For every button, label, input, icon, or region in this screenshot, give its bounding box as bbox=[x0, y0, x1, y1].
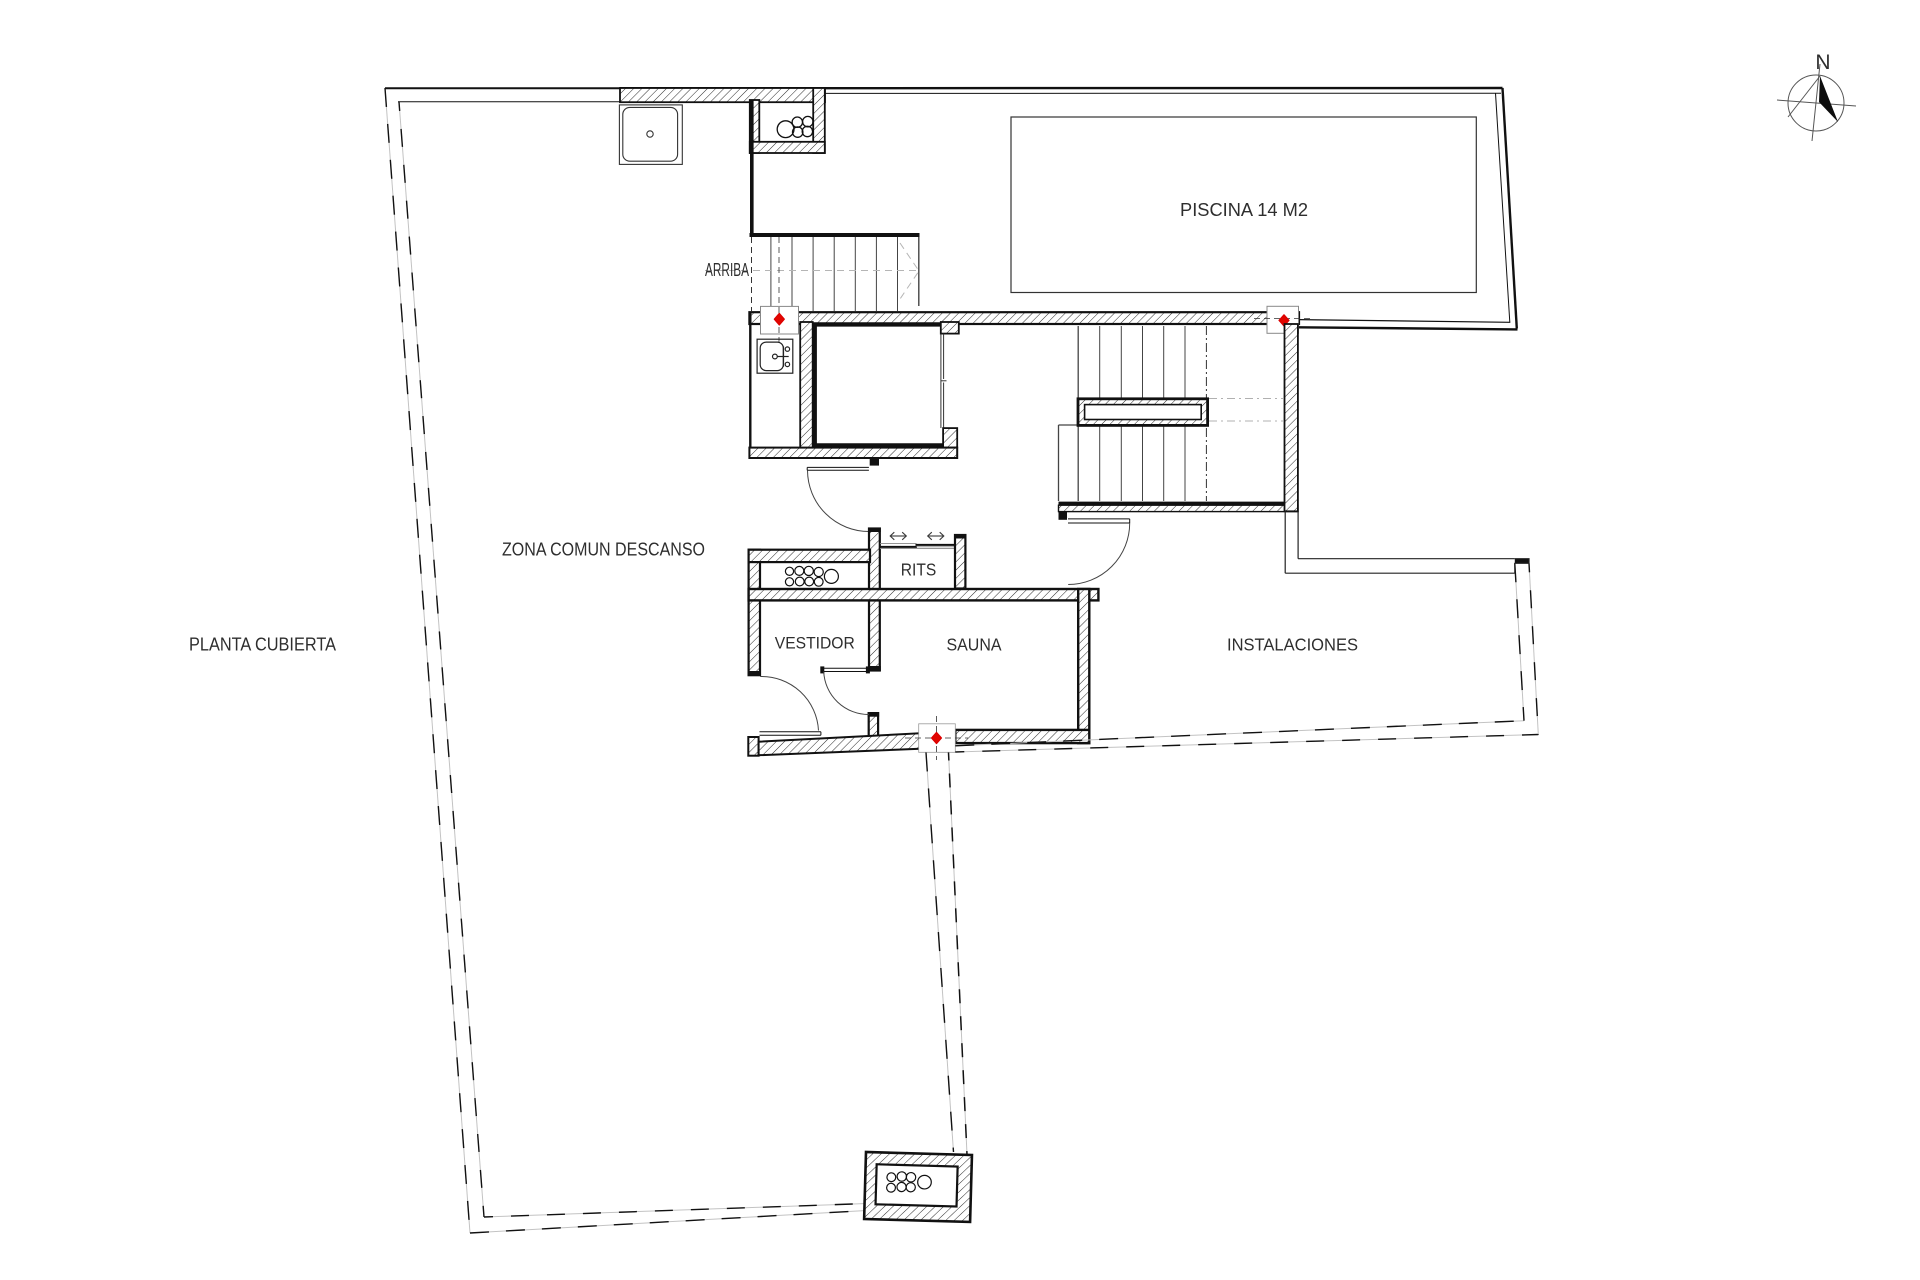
svg-text:VESTIDOR: VESTIDOR bbox=[775, 635, 855, 653]
svg-text:PLANTA CUBIERTA: PLANTA CUBIERTA bbox=[189, 635, 336, 655]
svg-text:SAUNA: SAUNA bbox=[947, 635, 1002, 655]
svg-text:N: N bbox=[1815, 51, 1830, 74]
svg-text:PISCINA 14 M2: PISCINA 14 M2 bbox=[1180, 200, 1308, 220]
svg-text:ZONA COMUN DESCANSO: ZONA COMUN DESCANSO bbox=[502, 540, 705, 560]
svg-text:INSTALACIONES: INSTALACIONES bbox=[1227, 635, 1358, 655]
svg-text:RITS: RITS bbox=[901, 560, 937, 580]
svg-text:ARRIBA: ARRIBA bbox=[705, 260, 749, 280]
